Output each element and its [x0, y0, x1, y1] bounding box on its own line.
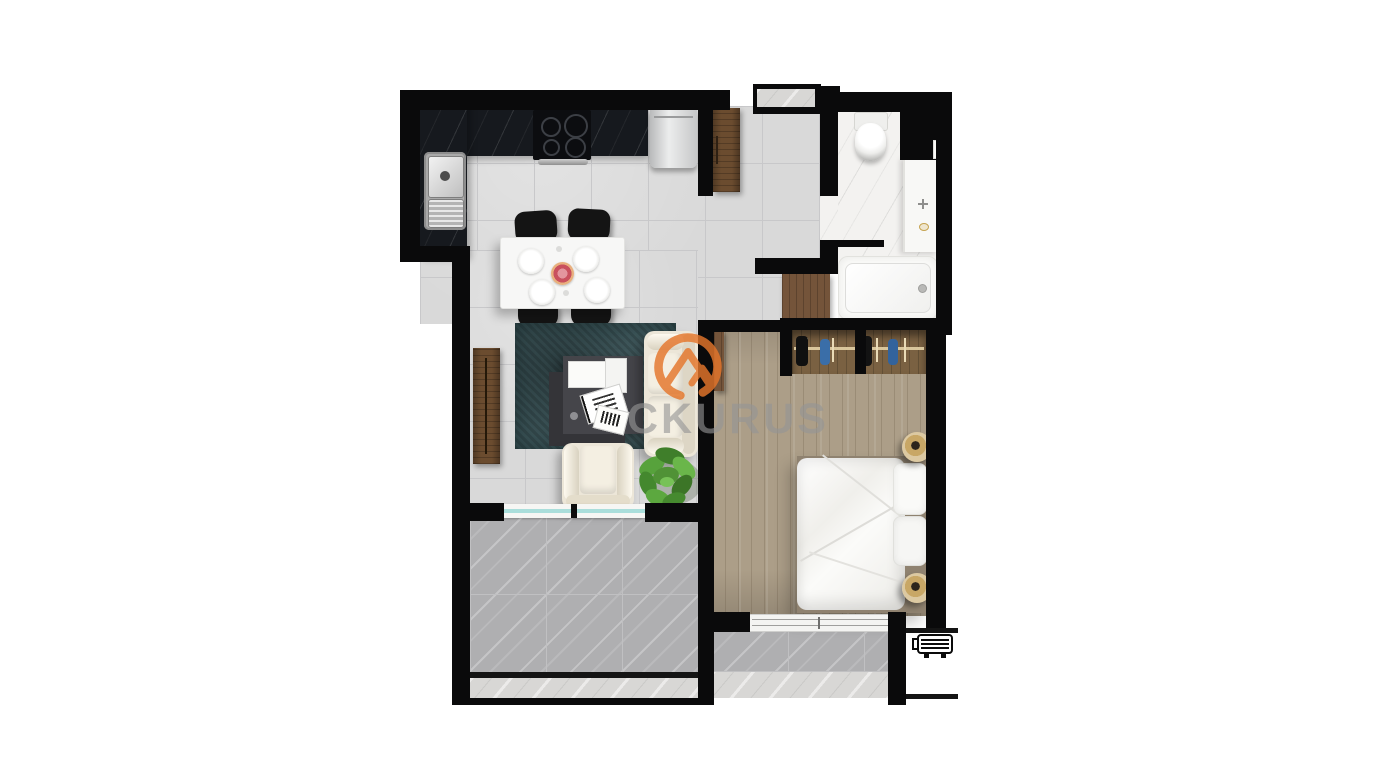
watermark-text: CKURUS: [627, 395, 829, 444]
toilet-bowl: [855, 123, 886, 161]
wall-segment: [698, 92, 713, 196]
wall-segment: [888, 612, 906, 705]
drain-icon: [919, 223, 929, 231]
vanity-sink: [903, 157, 938, 252]
watermark-logo: [650, 329, 726, 405]
duvet-fold: [809, 551, 901, 583]
plate-icon: [518, 248, 544, 274]
burner-icon: [564, 114, 588, 138]
wall-segment: [452, 250, 470, 705]
fruit-bowl: [551, 262, 574, 285]
appliance-trim: [654, 116, 693, 118]
glass-icon: [556, 246, 562, 252]
faucet-icon: [922, 199, 924, 209]
glass-icon: [563, 290, 569, 296]
wall-segment: [400, 90, 420, 262]
wardrobe-divider: [855, 326, 866, 374]
plate-icon: [529, 279, 555, 305]
tall-cabinet: [713, 108, 740, 192]
decor-icon: [570, 412, 578, 420]
wall-segment: [936, 110, 952, 335]
ac-outdoor-unit: [912, 633, 956, 661]
floor-plan-canvas: CKURUS: [0, 0, 1400, 780]
console-groove: [485, 358, 487, 454]
shaft-niche: [757, 89, 817, 107]
pillow: [893, 463, 927, 515]
plate-icon: [573, 246, 599, 272]
wall-segment: [698, 612, 750, 632]
cabinet-handle: [716, 136, 718, 164]
niche-line: [906, 694, 958, 699]
pillow: [893, 516, 927, 566]
plate-icon: [584, 277, 610, 303]
hanger-icon: [904, 338, 906, 362]
cooktop: [533, 110, 591, 160]
tv-console: [473, 348, 500, 464]
armchair-armrest: [564, 445, 579, 501]
outer-ledge-right: [712, 672, 890, 698]
hanger-icon: [876, 338, 878, 362]
cooktop-handle: [538, 159, 588, 165]
window: [748, 614, 892, 632]
outer-ledge-left: [470, 678, 698, 698]
appliance: [650, 110, 697, 168]
burner-icon: [565, 137, 586, 158]
sink-basin: [428, 156, 464, 198]
wall-segment: [815, 86, 840, 112]
bathroom-door-threshold: [820, 196, 838, 240]
terrace-floor: [712, 632, 890, 672]
burner-icon: [541, 117, 561, 137]
wardrobe-side-panel: [780, 318, 792, 376]
armchair: [562, 443, 634, 509]
wall-segment: [755, 258, 838, 274]
bathtub-basin: [845, 263, 931, 313]
wall-segment: [645, 503, 714, 522]
armchair-seat: [580, 446, 616, 494]
drain-icon: [918, 284, 927, 293]
dining-table: [500, 237, 625, 309]
door-jamb: [571, 504, 577, 518]
burner-icon: [543, 139, 560, 156]
wall-segment: [452, 698, 714, 705]
wall-segment: [452, 503, 504, 521]
sink-drainboard: [428, 199, 464, 228]
window-line: [752, 625, 888, 626]
balcony-parapet: [470, 672, 698, 678]
wall-segment: [820, 110, 838, 196]
hanger-icon: [832, 338, 834, 362]
book-stack: [568, 361, 606, 388]
hall-cabinet: [782, 274, 830, 318]
wall-segment: [400, 90, 730, 110]
shower-partition: [838, 240, 884, 247]
kitchen-sink: [424, 152, 466, 230]
clothing-item: [820, 339, 830, 365]
clothing-item: [888, 339, 898, 365]
sink-drain-icon: [440, 171, 450, 181]
window-line: [752, 619, 888, 620]
wall-segment: [820, 240, 838, 258]
balcony-floor: [470, 517, 698, 673]
wall-segment: [926, 318, 946, 632]
bathtub: [838, 256, 938, 320]
window-mullion: [818, 617, 820, 629]
clothing-item: [796, 336, 808, 366]
duvet: [797, 458, 905, 610]
sliding-glass-door: [497, 504, 652, 518]
